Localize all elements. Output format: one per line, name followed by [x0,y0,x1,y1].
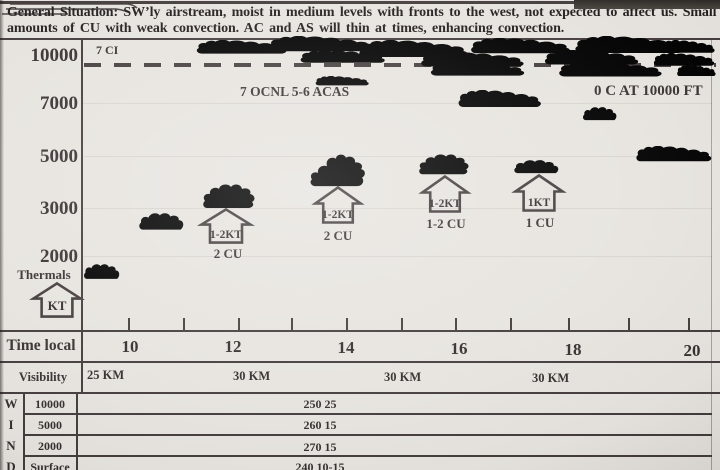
hour-tick [510,318,512,330]
acas-label: 7 OCNL 5-6 ACAS [240,84,349,100]
kt-unit-label: KT [32,298,82,314]
wind-letter: W [0,396,22,412]
wind-letter: I [0,417,22,433]
wind-row-border [23,413,712,415]
wind-row-border [23,455,712,457]
thermal-group-16: 1-2KT 1-2 CU [414,154,478,236]
thermal-arrow-icon: 1-2KT [200,208,252,244]
gridline-5000 [82,156,712,157]
thermal-strength-label: 1-2KT [314,209,362,221]
thermal-arrow-icon: 1-2KT [314,186,362,224]
hour-tick [401,318,403,330]
altocumulus-cloud-icon [676,65,718,78]
hour-tick [128,318,130,330]
cu-amount-label: 1-2 CU [414,216,478,232]
wind-value: 270 15 [120,440,520,455]
hour-tick [291,318,293,330]
visibility-value: 30 KM [532,371,569,386]
visibility-value: 25 KM [87,368,124,383]
visibility-top-border [0,361,720,363]
wind-level: 10000 [24,397,76,412]
wind-value: 240 10-15 [120,460,520,470]
small-cumulus-icon [83,264,123,281]
wind-table-top-border [0,392,720,394]
hour-tick [183,318,185,330]
cirrus-label: 7 CI [96,43,118,58]
alt-label-3000: 3000 [0,198,78,220]
stratocumulus-cloud-icon [634,146,716,164]
thermal-strength-label: 1-2KT [200,229,252,241]
alt-label-10000: 10000 [0,45,78,67]
alt-label-2000: 2000 [0,246,78,268]
thermal-strength-label: 1-2KT [421,198,469,210]
time-label-12: 12 [208,337,258,357]
cumulus-cloud-icon [513,160,563,175]
wind-level: 5000 [24,418,76,433]
hour-tick [628,318,630,330]
time-label-14: 14 [321,338,371,358]
time-label-10: 10 [105,337,155,357]
thermal-arrow-legend-icon: KT [32,282,82,318]
cu-amount-label: 1 CU [508,215,572,231]
weather-briefing-slide: General Situation: SW’ly airstream, mois… [0,0,720,470]
header-top-border [0,1,720,4]
altocumulus-cloud-icon [556,62,668,79]
hour-tick [455,318,457,330]
visibility-value: 30 KM [384,370,421,385]
wind-value: 250 25 [120,397,520,412]
thermal-arrow-icon: 1KT [514,174,564,212]
chart-left-border [81,38,83,392]
hour-tick [688,318,690,330]
thermals-legend-label: Thermals [8,267,80,283]
visibility-label: Visibility [10,370,76,385]
mid-cloud-icon [456,90,546,110]
cumulus-cloud-icon [309,154,367,188]
thermal-strength-label: 1KT [514,197,564,209]
thermal-group-12: 1-2KT 2 CU [196,184,260,264]
thermal-group-18: 1KT 1 CU [508,160,572,236]
alt-label-5000: 5000 [0,146,78,168]
general-situation-line1: General Situation: SW’ly airstream, mois… [7,5,716,21]
gridline-2000 [82,256,712,257]
cumulus-cloud-icon [202,184,256,210]
cumulus-cloud-icon [418,154,470,176]
general-situation-line2: amounts of CU with weak convection. AC a… [7,21,564,37]
alt-label-7000: 7000 [0,93,78,115]
wind-table-vline2 [76,392,78,470]
altocumulus-cloud-icon [298,50,390,65]
hour-tick [238,318,240,330]
thermal-group-14: 1-2KT 2 CU [306,154,370,246]
wind-level: Surface [24,460,76,470]
cu-amount-label: 2 CU [306,228,370,244]
wind-letter: D [0,459,22,470]
time-label-18: 18 [548,340,598,360]
visibility-value: 30 KM [233,369,270,384]
cu-amount-label: 2 CU [196,246,260,262]
gridline-7000 [82,103,712,104]
time-label-16: 16 [434,339,484,359]
thermal-arrow-icon: 1-2KT [421,175,469,213]
wind-letter: N [0,438,22,454]
time-axis-label: Time local [3,337,79,355]
wind-level: 2000 [24,439,76,454]
mid-cloud-icon [582,107,620,122]
hour-tick [346,318,348,330]
time-label-20: 20 [667,341,717,361]
wind-row-border [23,434,712,436]
gridline-3000 [82,208,712,209]
altocumulus-cloud-icon [428,62,530,78]
small-cumulus-icon [138,213,188,232]
wind-value: 260 15 [120,418,520,433]
time-axis-line [0,330,720,332]
freezing-level-label: 0 C AT 10000 FT [594,83,703,100]
hour-tick [568,318,570,330]
